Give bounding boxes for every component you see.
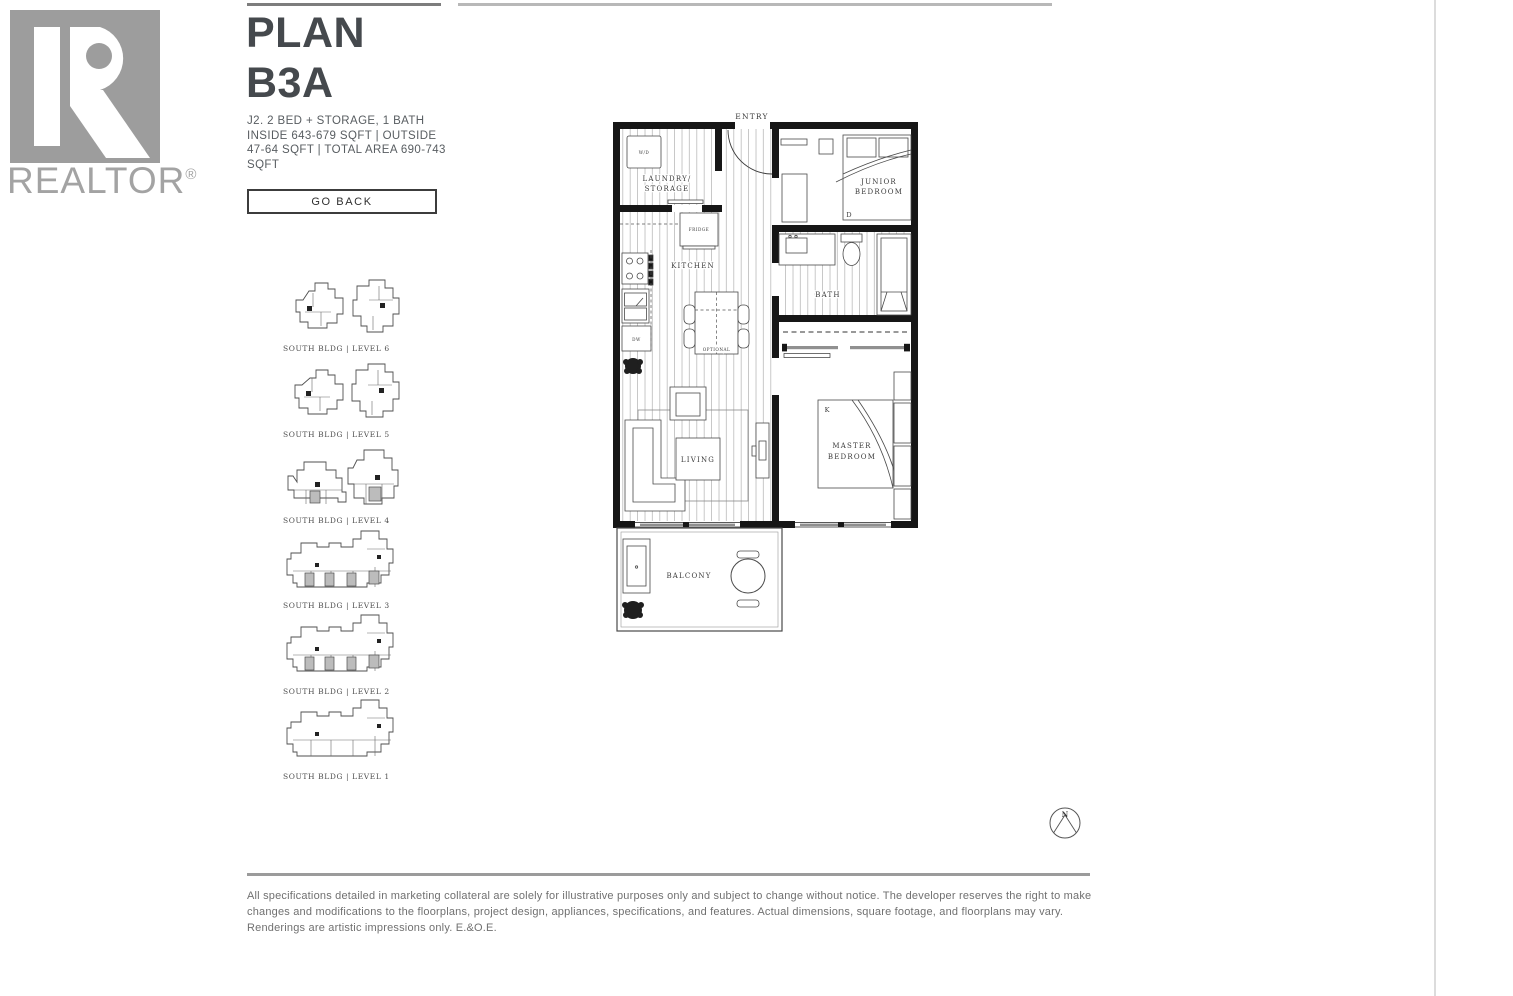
label-entry: ENTRY <box>735 112 768 121</box>
go-back-button[interactable]: GO BACK <box>247 189 437 214</box>
level-diagram-4: SOUTH BLDG | LEVEL 4 <box>283 442 418 525</box>
compass-icon: N <box>1045 803 1085 848</box>
label-junior-1: JUNIOR <box>860 178 897 186</box>
label-bath: BATH <box>815 291 840 299</box>
level-label: SOUTH BLDG | LEVEL 1 <box>283 772 418 781</box>
label-dw: DW <box>632 337 641 342</box>
label-optional: OPTIONAL <box>703 347 731 352</box>
level-label: SOUTH BLDG | LEVEL 6 <box>283 344 418 353</box>
top-rule-right <box>458 3 1052 6</box>
label-bed-k: K <box>825 406 830 414</box>
floorplan: ENTRY LAUNDRY/ STORAGE KITCHEN BATH LIVI… <box>600 110 940 655</box>
level-diagram-5: SOUTH BLDG | LEVEL 5 <box>283 356 418 439</box>
level-diagram-1: SOUTH BLDG | LEVEL 1 <box>283 698 418 781</box>
label-laundry-2: STORAGE <box>645 185 690 193</box>
label-balcony: BALCONY <box>666 572 711 580</box>
page-edge-line <box>1434 0 1436 996</box>
realtor-wordmark: REALTOR® <box>7 160 197 202</box>
page-title: PLAN B3A <box>246 8 365 108</box>
label-living: LIVING <box>681 456 715 464</box>
level-label: SOUTH BLDG | LEVEL 5 <box>283 430 418 439</box>
label-master-1: MASTER <box>832 442 871 450</box>
level-diagram-2: SOUTH BLDG | LEVEL 2 <box>283 613 418 696</box>
realtor-logo-icon <box>10 10 160 168</box>
label-junior-2: BEDROOM <box>855 188 903 196</box>
level-label: SOUTH BLDG | LEVEL 4 <box>283 516 418 525</box>
label-master-2: BEDROOM <box>828 453 876 461</box>
label-laundry-1: LAUNDRY/ <box>643 175 692 183</box>
label-door-d: D <box>846 211 851 219</box>
level-label: SOUTH BLDG | LEVEL 2 <box>283 687 418 696</box>
disclaimer-text: All specifications detailed in marketing… <box>247 888 1093 936</box>
compass-n-label: N <box>1062 810 1069 819</box>
level-label: SOUTH BLDG | LEVEL 3 <box>283 601 418 610</box>
level-diagram-3: SOUTH BLDG | LEVEL 3 <box>283 527 418 610</box>
footer-divider <box>247 873 1090 876</box>
top-rule-left <box>247 3 441 6</box>
label-kitchen: KITCHEN <box>671 262 715 270</box>
level-diagram-6: SOUTH BLDG | LEVEL 6 <box>283 270 418 353</box>
plan-spec: J2. 2 BED + STORAGE, 1 BATH INSIDE 643-6… <box>247 114 449 172</box>
label-fridge: FRIDGE <box>689 227 709 232</box>
label-wd: W/D <box>639 150 650 155</box>
